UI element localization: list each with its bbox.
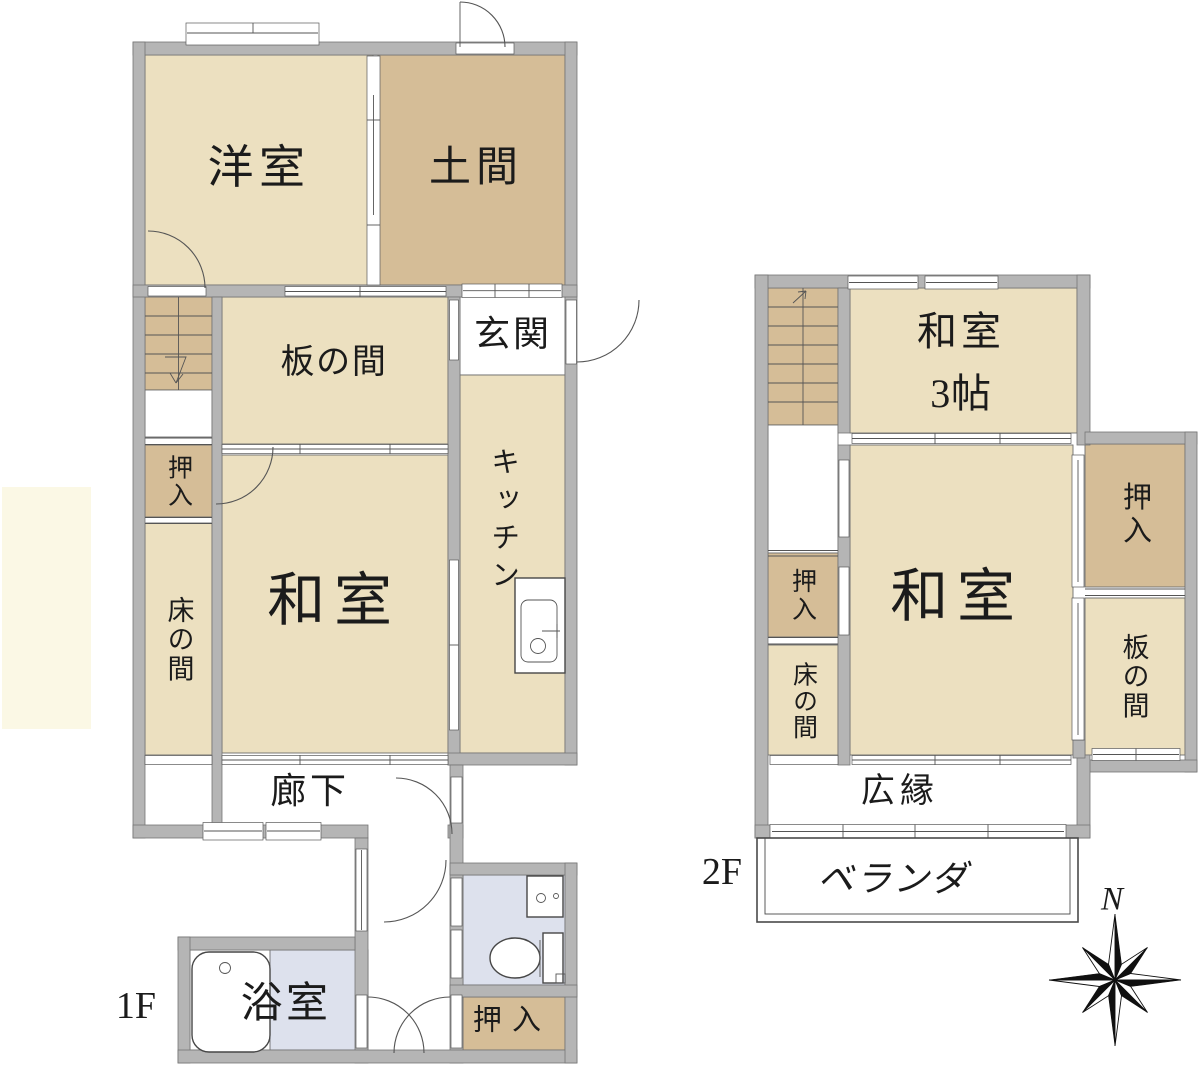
- room-label-veranda-2f: ベランダ: [817, 861, 968, 897]
- room-label-genkan-1f: 玄関: [474, 316, 552, 352]
- room-label-washitsu3-2f: 和室: [917, 312, 1005, 352]
- room-label-rouka-1f: 廊下: [270, 773, 349, 809]
- room-label-yokushitsu-1f: 浴室: [241, 983, 332, 1025]
- room-label-washitsu-2f: 和室: [890, 568, 1023, 626]
- toilet-washbasin: [527, 876, 563, 917]
- room-label-youshitsu-1f: 洋室: [207, 145, 310, 191]
- room-label-oshiire-right-2f: 押入: [1120, 482, 1149, 549]
- room-label-doma-1f: 土間: [429, 147, 523, 189]
- floor-label-2f: 2F: [702, 853, 742, 891]
- pale-highlight-rect: [2, 487, 91, 729]
- room-label-itanoma-1f: 板の間: [280, 346, 387, 380]
- compass-north-label: N: [1101, 884, 1123, 917]
- room-label-washitsu-1f: 和室: [267, 572, 400, 630]
- room-label-oshiire-left-2f: 押入: [790, 568, 815, 624]
- floor-label-1f: 1F: [116, 987, 156, 1025]
- room-label-oshiire-lower-1f: 押入: [473, 1007, 551, 1036]
- room-label-tokonoma-1f: 床の間: [165, 596, 192, 683]
- room-label-tokonoma-2f: 床の間: [791, 662, 816, 741]
- toilet: [490, 933, 565, 983]
- floorplan-drawing: [0, 0, 1200, 1073]
- room-label-washitsu3-size-2f: 3帖: [930, 374, 992, 414]
- kitchen-sink: [515, 578, 565, 673]
- floorplan-canvas: 洋室 土間 板の間 玄関 キッチン 押入 床の間 和室 廊下 浴室 押入 1F …: [0, 0, 1200, 1073]
- room-label-itanoma-2f: 板の間: [1120, 633, 1147, 720]
- room-label-oshiire-upper-1f: 押入: [166, 455, 191, 510]
- compass-rose: [1049, 914, 1181, 1046]
- room-label-kitchen-1f: キッチン: [488, 447, 517, 598]
- room-label-hiroen-2f: 広縁: [861, 775, 939, 809]
